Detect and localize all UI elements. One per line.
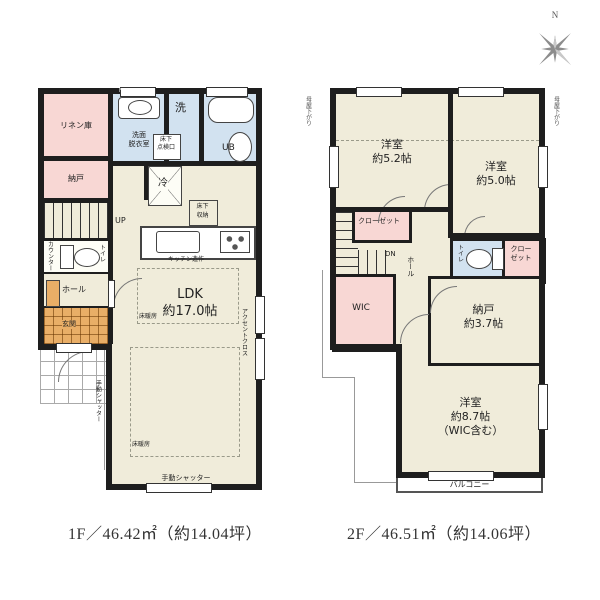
1f-porch-edge-line: [104, 350, 105, 470]
room-label-hall-1f: ホール: [62, 285, 86, 295]
kitchen-stove: [220, 231, 250, 253]
entrance-door-opening: [56, 343, 92, 353]
room-label-bath: UB: [222, 143, 235, 154]
label-manual-shutter-left: 手動シャッター: [94, 380, 102, 460]
window: [538, 384, 548, 430]
label-toilet-2f: トイレ: [456, 244, 464, 274]
label-counter: カウンター: [46, 241, 54, 274]
window: [146, 483, 212, 493]
wall-segment: [106, 344, 112, 490]
label-accent-cloth: アクセントクロス: [240, 308, 248, 388]
window: [206, 87, 248, 97]
roof-outline: [322, 270, 323, 378]
wall-segment: [448, 233, 544, 238]
window: [458, 87, 504, 97]
label-closet-left: クローゼット: [352, 217, 406, 226]
label-stairs-down: DN: [385, 250, 396, 259]
door-opening: [108, 280, 115, 308]
label-floor-heating-2: 床暖房: [132, 441, 150, 449]
wall-segment: [113, 161, 256, 166]
wall-segment: [199, 94, 204, 161]
label-floor-heating-1: 床暖房: [139, 313, 157, 321]
kitchen-sink: [156, 231, 200, 253]
room-label-bedroom52: 洋室 約5.2帖: [336, 138, 448, 166]
label-underfloor-storage: 床下 収納: [189, 202, 216, 220]
caption-2f-area: 2F／46.51㎡（約14.06坪）: [315, 520, 573, 544]
washbasin-bowl: [128, 100, 152, 115]
window: [255, 296, 265, 334]
compass-north-label: N: [522, 10, 588, 21]
caption-1f-area: 1F／46.42㎡（約14.04坪）: [30, 520, 300, 544]
wall-segment: [44, 156, 108, 161]
room-label-laundry: 洗: [175, 101, 186, 115]
bathtub: [208, 97, 254, 123]
shoe-cabinet: [46, 280, 60, 307]
roof-outline: [354, 377, 355, 483]
compass: N: [522, 10, 588, 84]
toilet-bowl: [74, 248, 100, 267]
room-label-entrance: 玄関: [62, 320, 76, 329]
window: [356, 87, 402, 97]
label-kitchen-note: キッチン造作: [168, 256, 204, 264]
roof-outline: [354, 482, 398, 483]
window: [538, 146, 548, 188]
roof-outline: [322, 377, 355, 378]
compass-rose-icon: [522, 18, 588, 80]
room-label-storage-2f: 納戸 約3.7帖: [428, 303, 539, 331]
label-balcony: バルコニー: [396, 480, 543, 490]
label-wall-tag: FG=32: [119, 88, 136, 94]
room-label-bedroom87: 洋室 約8.7帖 （WIC含む）: [402, 396, 539, 437]
room-label-linen: リネン庫: [44, 121, 108, 131]
1f-entrance-floor: [44, 308, 108, 344]
label-manual-shutter-bottom: 手動シャッター: [146, 474, 226, 483]
toilet-tank: [60, 245, 74, 269]
wall-segment: [256, 88, 262, 490]
floorplan-canvas: N: [0, 0, 600, 600]
label-toilet-1f: トイレ: [98, 244, 106, 274]
label-stairs-up: UP: [115, 216, 126, 226]
room-label-storage: 納戸: [44, 174, 108, 184]
1f-stairs: [44, 203, 108, 238]
wall-segment: [336, 207, 453, 212]
wall-segment: [44, 238, 108, 241]
label-fridge: 冷: [158, 178, 168, 191]
label-closet-right: クロー ゼット: [502, 245, 540, 263]
room-label-bedroom50: 洋室 約5.0帖: [453, 160, 539, 188]
label-moya-sagari-left: 母屋下がり: [304, 96, 312, 156]
toilet-bowl-2f: [466, 249, 492, 269]
label-wic: WIC: [332, 303, 390, 314]
wall-segment: [44, 198, 108, 203]
label-moya-sagari-right: 母屋下がり: [552, 96, 560, 156]
label-underfloor-hatch: 床下 点検口: [153, 136, 179, 153]
window: [255, 338, 265, 380]
label-hall-2f: ホール: [406, 256, 415, 290]
wall-segment: [330, 344, 402, 350]
